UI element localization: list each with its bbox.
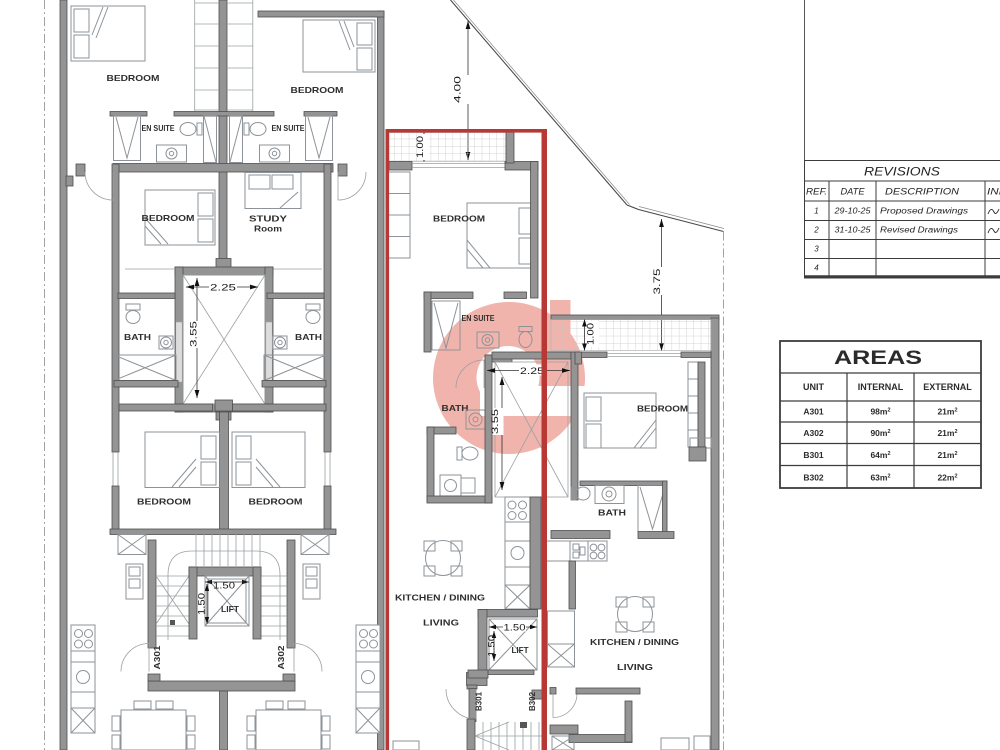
svg-text:3.75: 3.75 [652,269,662,295]
svg-text:4: 4 [814,264,819,273]
svg-text:1.50: 1.50 [504,623,526,633]
svg-text:KITCHEN / DINING: KITCHEN / DINING [590,637,679,647]
svg-text:BEDROOM: BEDROOM [291,85,344,95]
svg-text:STUDY: STUDY [249,214,287,224]
svg-text:B302: B302 [803,473,824,483]
svg-text:BATH: BATH [442,403,469,413]
svg-text:BATH: BATH [598,508,626,518]
svg-text:EN SUITE: EN SUITE [462,313,495,323]
svg-text:1.00: 1.00 [415,136,425,158]
svg-text:INIT: INIT [987,187,1000,197]
svg-text:REF.: REF. [806,187,827,197]
svg-text:BEDROOM: BEDROOM [107,73,160,83]
svg-text:2.25: 2.25 [520,366,544,376]
svg-text:A301: A301 [803,407,824,417]
svg-text:DESCRIPTION: DESCRIPTION [885,187,960,197]
svg-text:2: 2 [813,226,819,235]
svg-text:BEDROOM: BEDROOM [637,404,688,414]
svg-text:EN SUITE: EN SUITE [142,123,175,133]
svg-text:Proposed Drawings: Proposed Drawings [880,207,968,216]
svg-text:INTERNAL: INTERNAL [858,382,904,392]
svg-text:1.00: 1.00 [586,323,596,345]
svg-text:BATH: BATH [124,332,151,342]
svg-text:UNIT: UNIT [803,382,824,392]
svg-text:REVISIONS: REVISIONS [864,165,940,179]
svg-text:Revised Drawings: Revised Drawings [880,226,958,235]
svg-text:B301: B301 [803,450,824,460]
svg-text:LIFT: LIFT [221,604,240,614]
svg-text:31-10-25: 31-10-25 [835,226,872,235]
svg-text:B301: B301 [474,692,484,711]
svg-text:EN SUITE: EN SUITE [272,123,305,133]
svg-text:Room: Room [254,224,282,234]
svg-text:3.55: 3.55 [189,321,199,347]
svg-text:4.00: 4.00 [453,76,463,103]
svg-text:A302: A302 [276,645,286,669]
svg-text:A301: A301 [152,645,162,669]
svg-text:A302: A302 [803,428,824,438]
svg-text:1.50: 1.50 [197,593,207,615]
svg-text:LIVING: LIVING [423,618,459,628]
svg-text:3.55: 3.55 [490,409,500,434]
svg-text:KITCHEN / DINING: KITCHEN / DINING [395,593,485,603]
svg-text:LIVING: LIVING [617,662,653,672]
svg-text:B302: B302 [527,692,537,711]
svg-text:BEDROOM: BEDROOM [142,213,195,223]
svg-text:1.50: 1.50 [487,635,497,657]
svg-text:BEDROOM: BEDROOM [249,497,303,507]
svg-text:29-10-25: 29-10-25 [833,207,871,216]
svg-text:1: 1 [814,207,818,216]
svg-text:BATH: BATH [295,332,322,342]
svg-text:AREAS: AREAS [834,347,922,369]
svg-text:EXTERNAL: EXTERNAL [923,382,972,392]
svg-text:BEDROOM: BEDROOM [137,497,191,507]
svg-text:2.25: 2.25 [210,283,236,293]
svg-text:DATE: DATE [841,187,866,197]
svg-text:BEDROOM: BEDROOM [433,214,485,224]
svg-text:3: 3 [814,245,819,254]
svg-text:LIFT: LIFT [512,645,530,655]
svg-text:1.50: 1.50 [213,581,235,591]
